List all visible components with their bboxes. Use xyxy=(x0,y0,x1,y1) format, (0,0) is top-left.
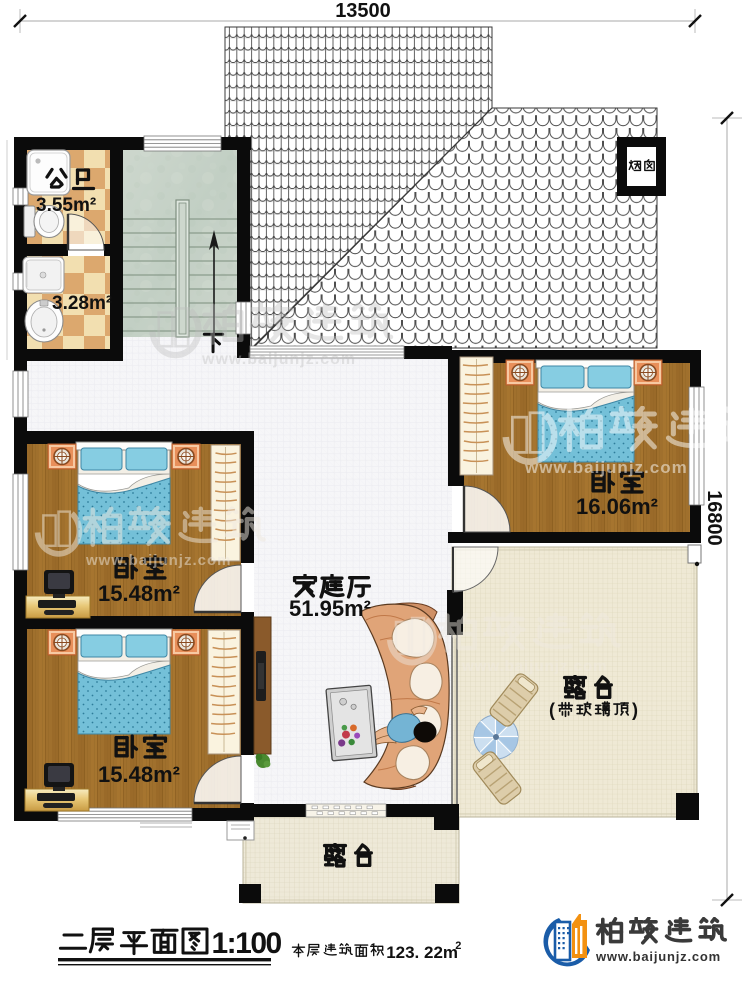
svg-text:51.95m²: 51.95m² xyxy=(289,596,371,621)
svg-text:): ) xyxy=(632,700,638,720)
svg-text:www.baijunjz.com: www.baijunjz.com xyxy=(595,949,721,964)
svg-text:15.48m²: 15.48m² xyxy=(98,581,180,606)
svg-text:1:100: 1:100 xyxy=(212,927,282,960)
svg-text:www.baijunjz.com: www.baijunjz.com xyxy=(461,658,607,675)
svg-text:3.28m²: 3.28m² xyxy=(52,293,112,314)
svg-text:15.48m²: 15.48m² xyxy=(98,762,180,787)
svg-text:www.baijunjz.com: www.baijunjz.com xyxy=(201,351,356,368)
svg-text:3.55m²: 3.55m² xyxy=(36,195,96,216)
svg-text:(: ( xyxy=(549,700,555,720)
svg-text:13500: 13500 xyxy=(335,0,391,22)
svg-text:2: 2 xyxy=(455,940,461,952)
svg-text:16.06m²: 16.06m² xyxy=(576,494,658,519)
svg-text:www.baijunjz.com: www.baijunjz.com xyxy=(524,458,688,477)
svg-text:www.baijunjz.com: www.baijunjz.com xyxy=(85,552,231,569)
svg-text:16800: 16800 xyxy=(703,490,725,546)
svg-text:123. 22m: 123. 22m xyxy=(386,943,458,962)
